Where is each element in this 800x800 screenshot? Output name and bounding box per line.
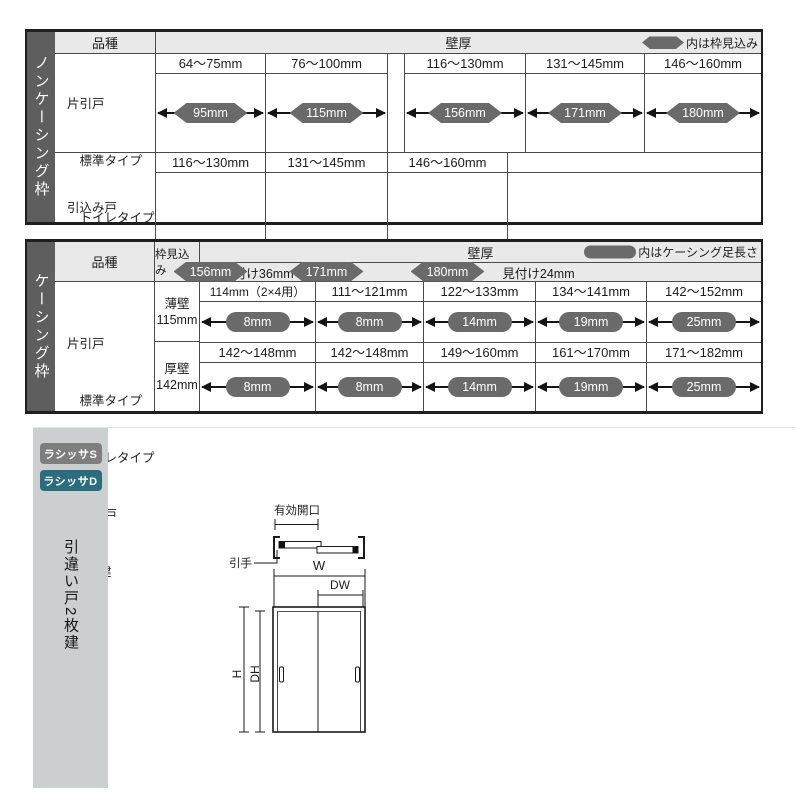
casing-leg-pill: 8mm bbox=[338, 377, 402, 397]
wall-thickness-column: 142〜148mm 8mm bbox=[315, 343, 423, 411]
product-sidebar: ラシッサS ラシッサD 引違い戸2枚建 bbox=[33, 428, 108, 788]
legend-pill-icon bbox=[584, 246, 636, 259]
non-casing-frame-table: ノンケーシング枠 品種 壁厚 内は枠見込み 片引戸 標準タイプ トイレタイプ 引… bbox=[25, 29, 763, 225]
w-dimension-line bbox=[274, 569, 365, 607]
wall-thickness-column: 111〜121mm 8mm bbox=[315, 282, 423, 342]
wall-range: 131〜145mm bbox=[526, 54, 644, 74]
section-side-label: 引違い戸2枚建 bbox=[60, 539, 81, 651]
thin-wall-cell: 薄壁 115mm bbox=[155, 282, 199, 342]
dh-dimension-label: DH bbox=[248, 665, 262, 682]
product-type-cell: 片引戸 標準タイプ トイレタイプ 引違い戸 2枚建 bbox=[55, 282, 155, 411]
right-door-panel-plan bbox=[317, 547, 358, 554]
w-dimension-label: W bbox=[313, 558, 326, 573]
wall-thickness-column: 76〜100mm 115mm bbox=[265, 54, 387, 152]
dimension-arrow: 14mm bbox=[424, 302, 535, 342]
table-row: 片引戸 標準タイプ トイレタイプ 引違い戸 2枚建 64〜75mm 95mm 7… bbox=[55, 54, 761, 152]
legend: 内はケーシング足長さ bbox=[584, 244, 758, 261]
dimension-arrow: 115mm bbox=[266, 74, 387, 152]
wall-thickness-column: 142〜152mm 25mm bbox=[646, 282, 761, 342]
casing-leg-pill: 19mm bbox=[559, 312, 623, 332]
column-header-wall: 壁厚 内はケーシング足長さ bbox=[200, 242, 761, 262]
column-header-kind: 品種 bbox=[55, 32, 155, 53]
casing-frame-table: ケーシング枠 品種 枠見込み 壁厚 内はケーシング足長さ 見付け36mm 見付け… bbox=[25, 239, 763, 414]
facing-24-header: 見付け24mm bbox=[315, 263, 761, 282]
legend-pill-icon bbox=[642, 36, 684, 49]
lasissa-s-badge: ラシッサS bbox=[40, 443, 102, 464]
casing-leg-pill: 14mm bbox=[448, 312, 512, 332]
wall-thickness-column: 161〜170mm 19mm bbox=[535, 343, 646, 411]
casing-leg-pill: 8mm bbox=[338, 312, 402, 332]
wall-range: 116〜130mm bbox=[156, 153, 265, 173]
right-handle-recess bbox=[356, 667, 360, 682]
column-header-kind: 品種 bbox=[55, 242, 155, 281]
effective-opening-label: 有効開口 bbox=[274, 503, 320, 517]
dimension-arrow: 14mm bbox=[424, 363, 535, 411]
table-side-strip: ノンケーシング枠 bbox=[27, 32, 55, 222]
frame-depth-pill: 180mm bbox=[666, 103, 740, 123]
dimension-arrow: 95mm bbox=[156, 74, 265, 152]
dw-dimension-label: DW bbox=[330, 578, 351, 592]
right-jamb bbox=[358, 537, 364, 558]
effective-opening-dimension-line bbox=[275, 519, 318, 530]
dimension-arrow: 19mm bbox=[536, 363, 646, 411]
frame-depth-pill: 115mm bbox=[290, 103, 364, 123]
frame-depth-pill: 156mm bbox=[174, 262, 248, 282]
frame-depth-column: 薄壁 115mm 厚壁 142mm bbox=[155, 282, 200, 411]
table-row: 142〜148mm 8mm 142〜148mm 8mm 149〜160mm 14… bbox=[200, 342, 761, 411]
wall-thickness-column: 134〜141mm 19mm bbox=[535, 282, 646, 342]
table-row: 114mm（2×4用） 8mm 111〜121mm 8mm 122〜133mm … bbox=[200, 282, 761, 342]
casing-leg-pill: 14mm bbox=[448, 377, 512, 397]
table-side-strip: ケーシング枠 bbox=[27, 242, 55, 411]
casing-leg-pill: 19mm bbox=[559, 377, 623, 397]
wall-header-label: 壁厚 bbox=[445, 33, 471, 52]
legend-text: 内は枠見込み bbox=[686, 34, 758, 51]
product-type-cell: 片引戸 標準タイプ トイレタイプ 引違い戸 2枚建 bbox=[55, 54, 155, 152]
dimension-arrow: 8mm bbox=[200, 302, 315, 342]
frame-depth-pill: 171mm bbox=[548, 103, 622, 123]
wall-range: 142〜152mm bbox=[647, 282, 761, 302]
h-dimension-label: H bbox=[230, 670, 244, 679]
dimension-arrow: 25mm bbox=[647, 302, 761, 342]
wall-range: 76〜100mm bbox=[266, 54, 387, 74]
wall-range: 114mm（2×4用） bbox=[200, 282, 315, 302]
table-header-row: 品種 枠見込み 壁厚 内はケーシング足長さ 見付け36mm 見付け24mm bbox=[55, 242, 761, 282]
casing-leg-pill: 8mm bbox=[226, 312, 290, 332]
column-gap bbox=[387, 54, 404, 152]
thick-wall-cell: 厚壁 142mm bbox=[155, 342, 199, 411]
wall-thickness-column: 142〜148mm 8mm bbox=[200, 343, 315, 411]
wall-range: 161〜170mm bbox=[536, 343, 646, 363]
wall-thickness-column: 149〜160mm 14mm bbox=[423, 343, 535, 411]
wall-range: 111〜121mm bbox=[316, 282, 423, 302]
handle-label: 引手 bbox=[229, 556, 252, 570]
section-divider bbox=[33, 427, 795, 428]
wall-thickness-column: 64〜75mm 95mm bbox=[155, 54, 265, 152]
left-door-pull bbox=[279, 542, 285, 549]
empty-range bbox=[508, 153, 761, 173]
wall-range: 131〜145mm bbox=[266, 153, 387, 173]
wall-range: 171〜182mm bbox=[647, 343, 761, 363]
dimension-arrow: 8mm bbox=[200, 363, 315, 411]
dimension-arrow: 171mm bbox=[526, 74, 644, 152]
dimension-arrow: 180mm bbox=[645, 74, 761, 152]
wall-thickness-column: 114mm（2×4用） 8mm bbox=[200, 282, 315, 342]
wall-thickness-column: 116〜130mm 156mm bbox=[404, 54, 525, 152]
casing-leg-pill: 8mm bbox=[226, 377, 290, 397]
lasissa-d-badge: ラシッサD bbox=[40, 470, 102, 491]
dimension-arrow: 8mm bbox=[316, 302, 423, 342]
wall-range: 146〜160mm bbox=[645, 54, 761, 74]
frame-depth-pill: 95mm bbox=[174, 103, 248, 123]
door-dimension-diagram: 有効開口 引手 W DW H DH bbox=[225, 490, 415, 750]
wall-range: 134〜141mm bbox=[536, 282, 646, 302]
wall-range: 149〜160mm bbox=[424, 343, 535, 363]
frame-depth-pill: 156mm bbox=[428, 103, 502, 123]
wall-thickness-column: 122〜133mm 14mm bbox=[423, 282, 535, 342]
door-frame-elevation bbox=[273, 607, 365, 732]
dimension-arrow: 25mm bbox=[647, 363, 761, 411]
wall-thickness-column: 171〜182mm 25mm bbox=[646, 343, 761, 411]
wall-range: 116〜130mm bbox=[405, 54, 525, 74]
legend: 内は枠見込み bbox=[642, 34, 758, 51]
wall-header-label: 壁厚 bbox=[467, 243, 493, 262]
right-door-pull bbox=[353, 547, 359, 554]
casing-leg-pill: 25mm bbox=[672, 312, 736, 332]
column-header-wall: 壁厚 内は枠見込み bbox=[155, 32, 761, 53]
table-header-row: 品種 壁厚 内は枠見込み bbox=[55, 32, 761, 54]
legend-text: 内はケーシング足長さ bbox=[638, 244, 758, 261]
wall-range: 146〜160mm bbox=[388, 153, 507, 173]
frame-depth-pill: 180mm bbox=[411, 262, 485, 282]
dimension-arrow: 19mm bbox=[536, 302, 646, 342]
wall-thickness-column: 146〜160mm 180mm bbox=[644, 54, 761, 152]
left-handle-recess bbox=[280, 667, 284, 682]
wall-thickness-column: 131〜145mm 171mm bbox=[525, 54, 644, 152]
wall-range: 122〜133mm bbox=[424, 282, 535, 302]
left-door-panel-plan bbox=[279, 542, 321, 549]
wall-range: 64〜75mm bbox=[156, 54, 265, 74]
frame-depth-pill: 171mm bbox=[290, 262, 364, 282]
dimension-arrow: 8mm bbox=[316, 363, 423, 411]
wall-range: 142〜148mm bbox=[200, 343, 315, 363]
wall-range: 142〜148mm bbox=[316, 343, 423, 363]
casing-leg-pill: 25mm bbox=[672, 377, 736, 397]
dimension-arrow: 156mm bbox=[405, 74, 525, 152]
